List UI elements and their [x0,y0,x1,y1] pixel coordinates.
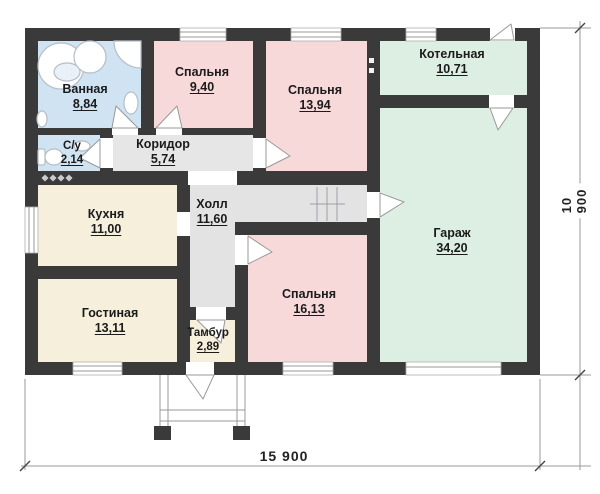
porch-pillar [154,426,171,440]
room-label-bedroom-2: Спальня13,94 [288,83,342,113]
room-label-garage: Гараж34,20 [433,226,470,256]
dimension-width-label: 15 900 [260,448,309,464]
dimension-height-label: 10 900 [559,184,589,219]
toilet-icon [38,149,45,165]
sink-icon [124,92,138,114]
room-label-bedroom-3: Спальня16,13 [282,287,336,317]
room-label-boiler-room: Котельная10,71 [419,47,484,77]
room-label-vestibule: Тамбур2,89 [187,326,229,354]
floor-plan-drawing [0,0,600,494]
room-label-kitchen: Кухня11,00 [88,207,125,237]
floor-plan: Ванная8,84 С/у2,14 Коридор5,74 Спальня9,… [0,0,600,494]
room-label-hall: Холл11,60 [196,197,227,227]
room-label-bedroom-1: Спальня9,40 [175,65,229,95]
room-label-living-room: Гостиная13,11 [82,306,139,336]
room-label-bathroom: Ванная8,84 [62,82,107,112]
porch-pillar [233,426,250,440]
room-label-wc: С/у2,14 [61,139,83,167]
room-label-corridor: Коридор5,74 [136,137,190,167]
vestibule-entry-door [186,375,214,399]
